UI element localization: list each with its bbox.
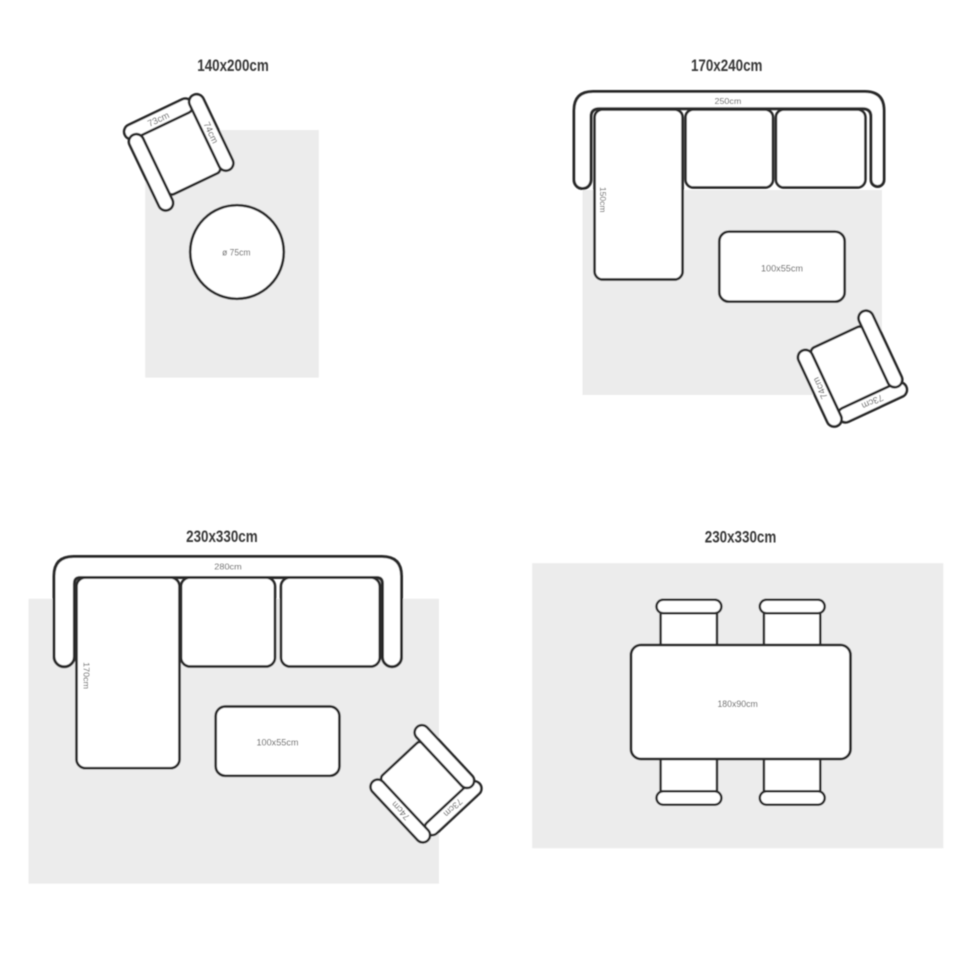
svg-text:230x330cm: 230x330cm bbox=[186, 527, 258, 546]
svg-text:ø 75cm: ø 75cm bbox=[222, 248, 251, 258]
svg-text:100x55cm: 100x55cm bbox=[761, 263, 803, 273]
svg-text:140x200cm: 140x200cm bbox=[197, 56, 269, 75]
svg-text:170x240cm: 170x240cm bbox=[691, 56, 763, 75]
svg-text:280cm: 280cm bbox=[214, 561, 241, 571]
svg-text:230x330cm: 230x330cm bbox=[705, 527, 777, 546]
svg-text:100x55cm: 100x55cm bbox=[257, 737, 299, 747]
svg-text:180x90cm: 180x90cm bbox=[717, 699, 758, 709]
svg-text:250cm: 250cm bbox=[715, 96, 742, 106]
svg-text:170cm: 170cm bbox=[82, 662, 92, 689]
svg-text:150cm: 150cm bbox=[598, 187, 608, 213]
